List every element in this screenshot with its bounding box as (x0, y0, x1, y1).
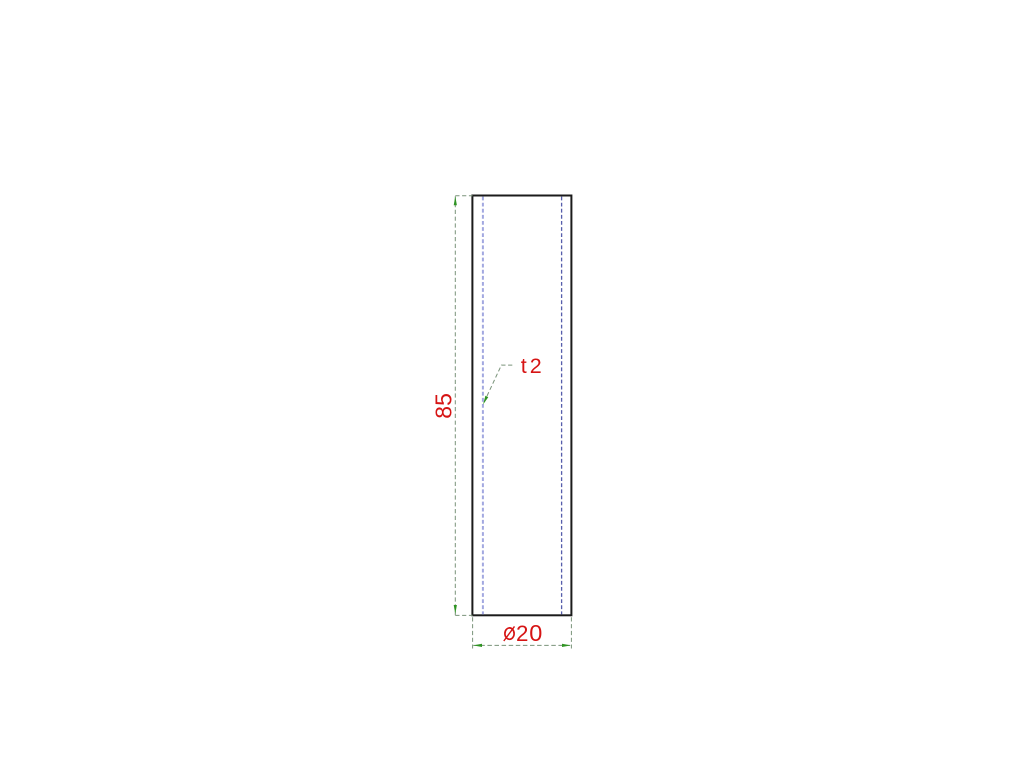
svg-text:85: 85 (431, 393, 457, 419)
svg-text:t2: t2 (521, 354, 542, 378)
svg-text:20: 20 (516, 620, 542, 646)
